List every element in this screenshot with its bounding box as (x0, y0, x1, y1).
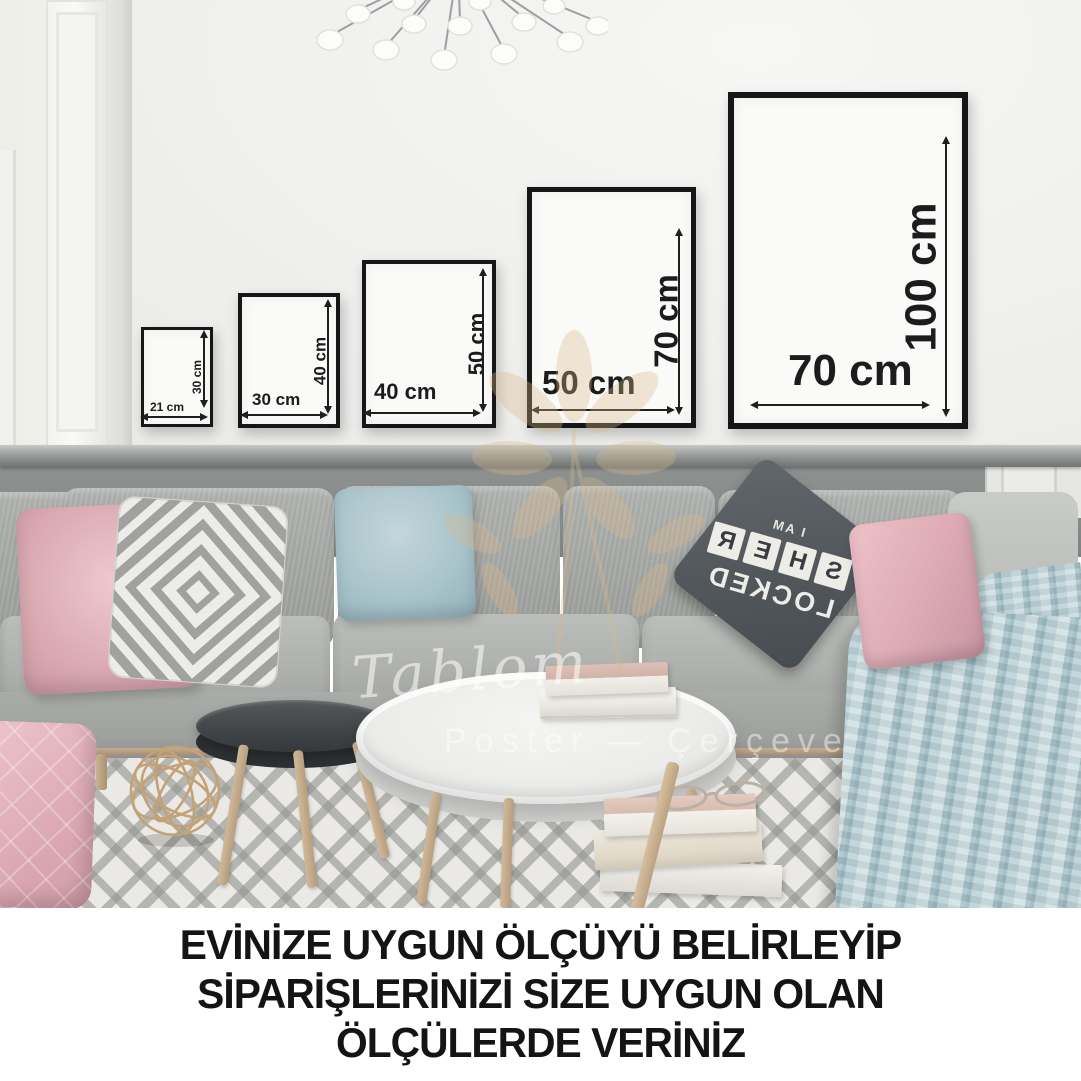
chair-rail-molding (0, 445, 1081, 467)
wall-pilaster-panel (56, 12, 98, 432)
height-arrow (327, 307, 329, 406)
width-arrow (148, 416, 200, 418)
chandelier (308, 0, 608, 84)
pink-pouf (0, 720, 97, 910)
width-arrow (758, 404, 922, 406)
height-arrow (678, 236, 680, 407)
pink-velvet-pillow-right (848, 511, 987, 671)
frame-30x40-width-label: 30 cm (252, 391, 300, 408)
decorative-wire-sphere (126, 742, 226, 848)
frame-30x40: 30 cm 40 cm (238, 293, 340, 428)
blue-velvet-pillow (334, 485, 477, 622)
sofa-leg (96, 754, 107, 790)
frame-21x30-width-label: 21 cm (150, 401, 184, 413)
width-arrow (539, 409, 667, 411)
frame-21x30: 21 cm 30 cm (141, 327, 213, 427)
width-arrow (371, 412, 473, 414)
frame-50x70-width-label: 50 cm (542, 366, 636, 399)
frame-50x70: 50 cm 70 cm (527, 187, 696, 428)
letter-tile: E (743, 531, 783, 571)
caption-band: EVİNİZE UYGUN ÖLÇÜYÜ BELİRLEYİP SİPARİŞL… (0, 908, 1081, 1081)
pillow-text-top: I AM (769, 516, 807, 540)
frame-70x100: 70 cm 100 cm (728, 92, 968, 429)
width-arrow (248, 414, 320, 416)
height-arrow (945, 144, 947, 409)
left-wall (0, 0, 132, 452)
caption-line-3: ÖLÇÜLERDE VERİNİZ (16, 1018, 1065, 1067)
product-size-guide-image: 21 cm 30 cm 30 cm 40 cm 40 cm 50 cm 50 c… (0, 0, 1081, 1081)
frame-40x50-height-label: 50 cm (466, 313, 488, 375)
height-arrow (482, 276, 484, 404)
frame-70x100-width-label: 70 cm (788, 349, 913, 393)
wall-pilaster (46, 0, 108, 448)
caption-line-2: SİPARİŞLERİNİZİ SİZE UYGUN OLAN (16, 969, 1065, 1018)
frame-40x50-width-label: 40 cm (374, 381, 436, 403)
letter-tile: R (707, 521, 747, 561)
book-on-table (546, 662, 669, 696)
frame-30x40-height-label: 40 cm (311, 336, 328, 384)
letter-tile: S (814, 552, 854, 592)
height-arrow (203, 338, 205, 400)
letter-tile: H (778, 542, 818, 582)
caption-line-1: EVİNİZE UYGUN ÖLÇÜYÜ BELİRLEYİP (16, 920, 1065, 969)
geometric-pillow (106, 494, 290, 690)
frame-21x30-height-label: 30 cm (191, 360, 203, 394)
frame-40x50: 40 cm 50 cm (362, 260, 496, 428)
frame-70x100-height-label: 100 cm (899, 202, 943, 351)
left-wall-panel (0, 150, 16, 452)
